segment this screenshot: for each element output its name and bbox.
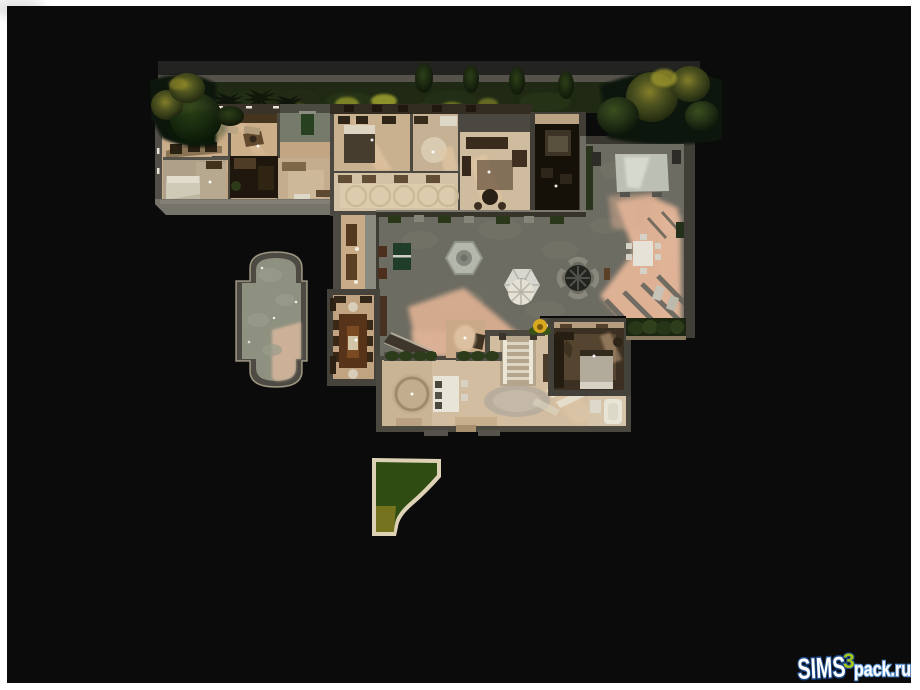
svg-text:pack.ru: pack.ru xyxy=(854,659,911,681)
svg-text:SIMS: SIMS xyxy=(797,652,847,686)
svg-text:3: 3 xyxy=(843,650,855,673)
